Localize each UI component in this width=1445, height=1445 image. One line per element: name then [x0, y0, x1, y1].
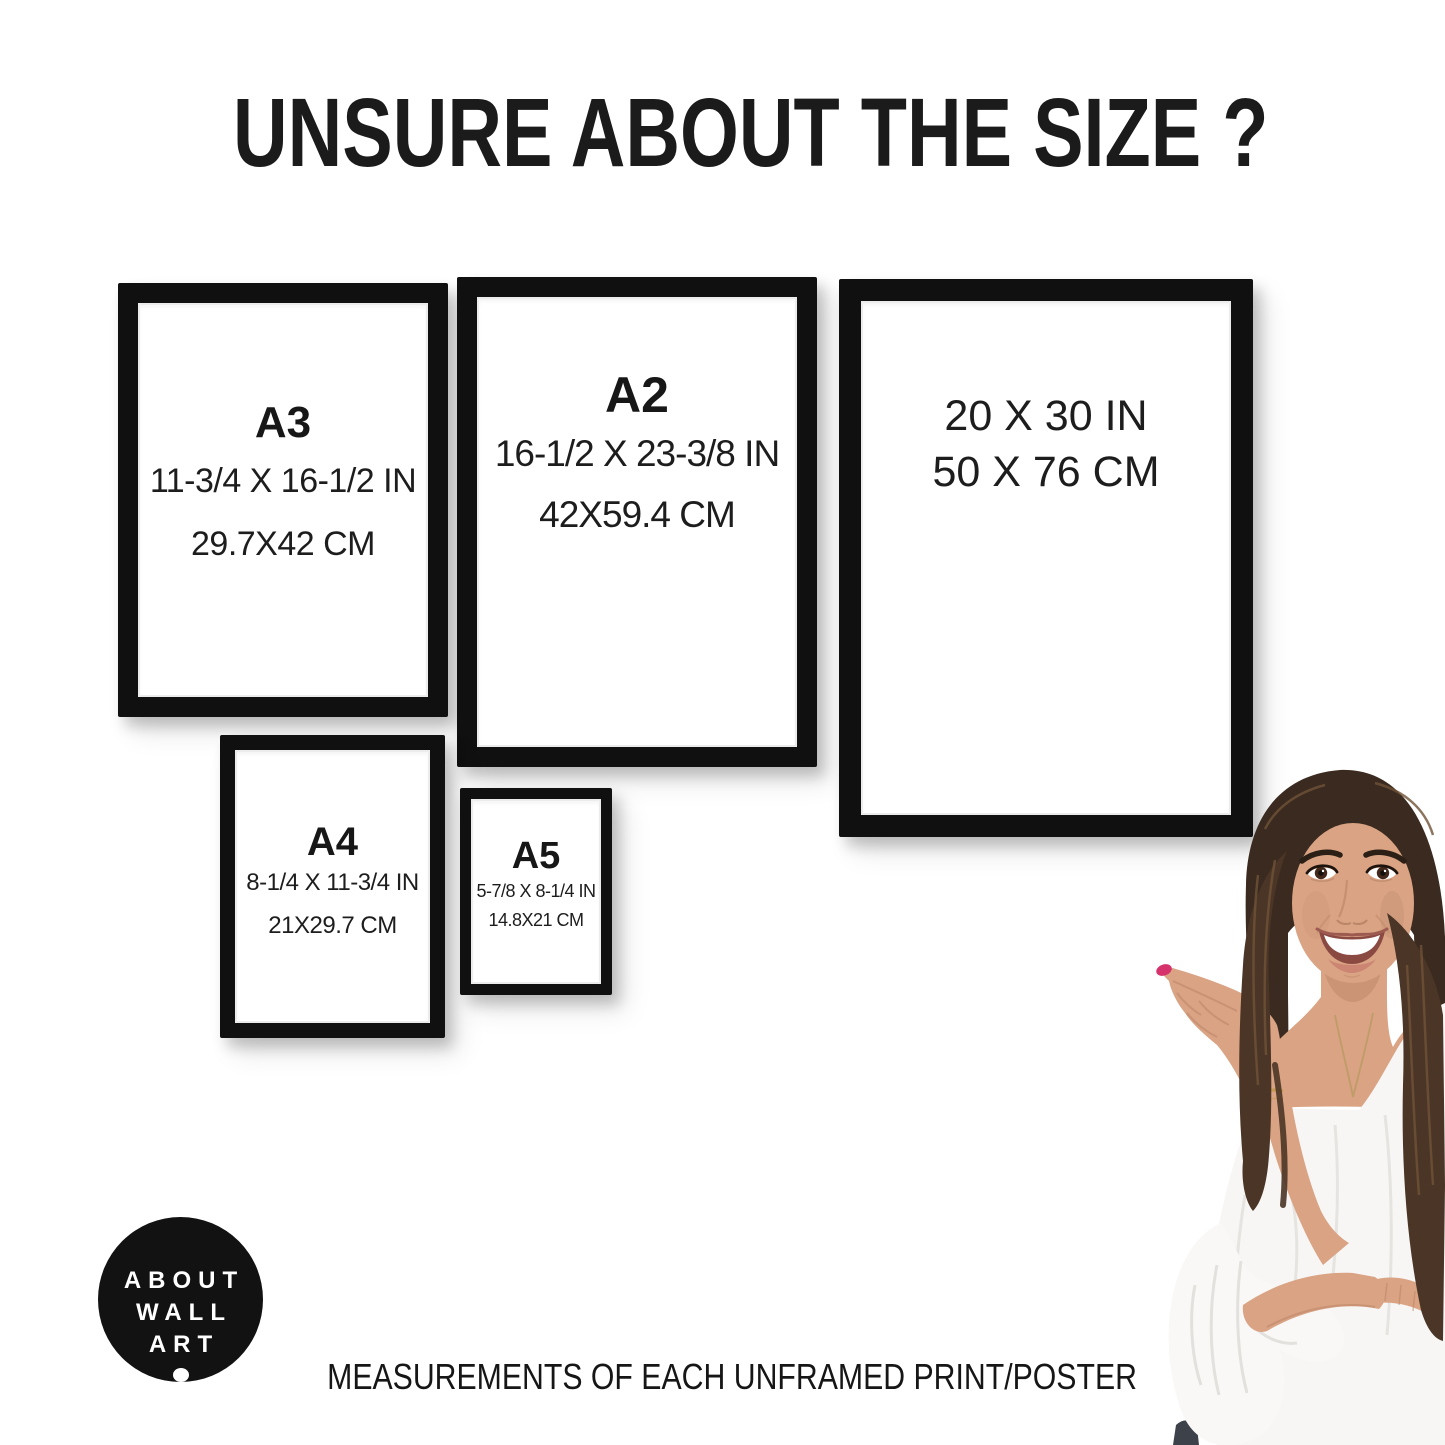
page-title: UNSURE ABOUT THE SIZE ? [0, 84, 1445, 181]
model-photo [1125, 765, 1445, 1445]
logo-line-2: WALL [129, 1297, 232, 1329]
size-inches-a4: 8-1/4 X 11-3/4 IN [246, 870, 418, 896]
size-label-a2: A2 [605, 368, 669, 422]
logo-line-1: ABOUT [117, 1265, 244, 1297]
size-label-a5: A5 [512, 837, 561, 877]
size-inches-20x30: 20 X 30 IN [944, 392, 1147, 440]
size-inches-a5: 5-7/8 X 8-1/4 IN [476, 882, 595, 902]
brand-logo: ABOUT WALL ART [98, 1217, 263, 1382]
logo-dot-icon [173, 1368, 189, 1382]
frame-20x30: 20 X 30 IN 50 X 76 CM [839, 279, 1253, 837]
page-title-text: UNSURE ABOUT THE SIZE ? [233, 84, 1268, 181]
size-cm-a2: 42X59.4 CM [539, 495, 735, 536]
frame-a5-paper: A5 5-7/8 X 8-1/4 IN 14.8X21 CM [471, 799, 601, 984]
size-guide-poster: UNSURE ABOUT THE SIZE ? A3 11-3/4 X 16-1… [0, 0, 1445, 1445]
frame-a3: A3 11-3/4 X 16-1/2 IN 29.7X42 CM [118, 283, 448, 717]
frame-a4: A4 8-1/4 X 11-3/4 IN 21X29.7 CM [220, 735, 445, 1038]
frame-a4-paper: A4 8-1/4 X 11-3/4 IN 21X29.7 CM [235, 750, 430, 1023]
frame-a3-paper: A3 11-3/4 X 16-1/2 IN 29.7X42 CM [138, 303, 428, 697]
size-label-a4: A4 [307, 821, 358, 863]
size-cm-a3: 29.7X42 CM [191, 526, 375, 563]
frame-a5: A5 5-7/8 X 8-1/4 IN 14.8X21 CM [460, 788, 612, 995]
size-cm-20x30: 50 X 76 CM [932, 448, 1159, 496]
size-inches-a2: 16-1/2 X 23-3/8 IN [495, 434, 779, 475]
footer-caption: MEASUREMENTS OF EACH UNFRAMED PRINT/POST… [250, 1356, 1080, 1398]
logo-line-3: ART [142, 1329, 219, 1361]
size-label-a3: A3 [255, 399, 311, 447]
frame-a2-paper: A2 16-1/2 X 23-3/8 IN 42X59.4 CM [477, 297, 797, 747]
size-cm-a5: 14.8X21 CM [488, 911, 583, 931]
frame-20x30-paper: 20 X 30 IN 50 X 76 CM [861, 301, 1231, 815]
size-inches-a3: 11-3/4 X 16-1/2 IN [150, 463, 416, 500]
footer-caption-text: MEASUREMENTS OF EACH UNFRAMED PRINT/POST… [327, 1356, 1137, 1398]
frame-a2: A2 16-1/2 X 23-3/8 IN 42X59.4 CM [457, 277, 817, 767]
size-cm-a4: 21X29.7 CM [268, 913, 396, 939]
